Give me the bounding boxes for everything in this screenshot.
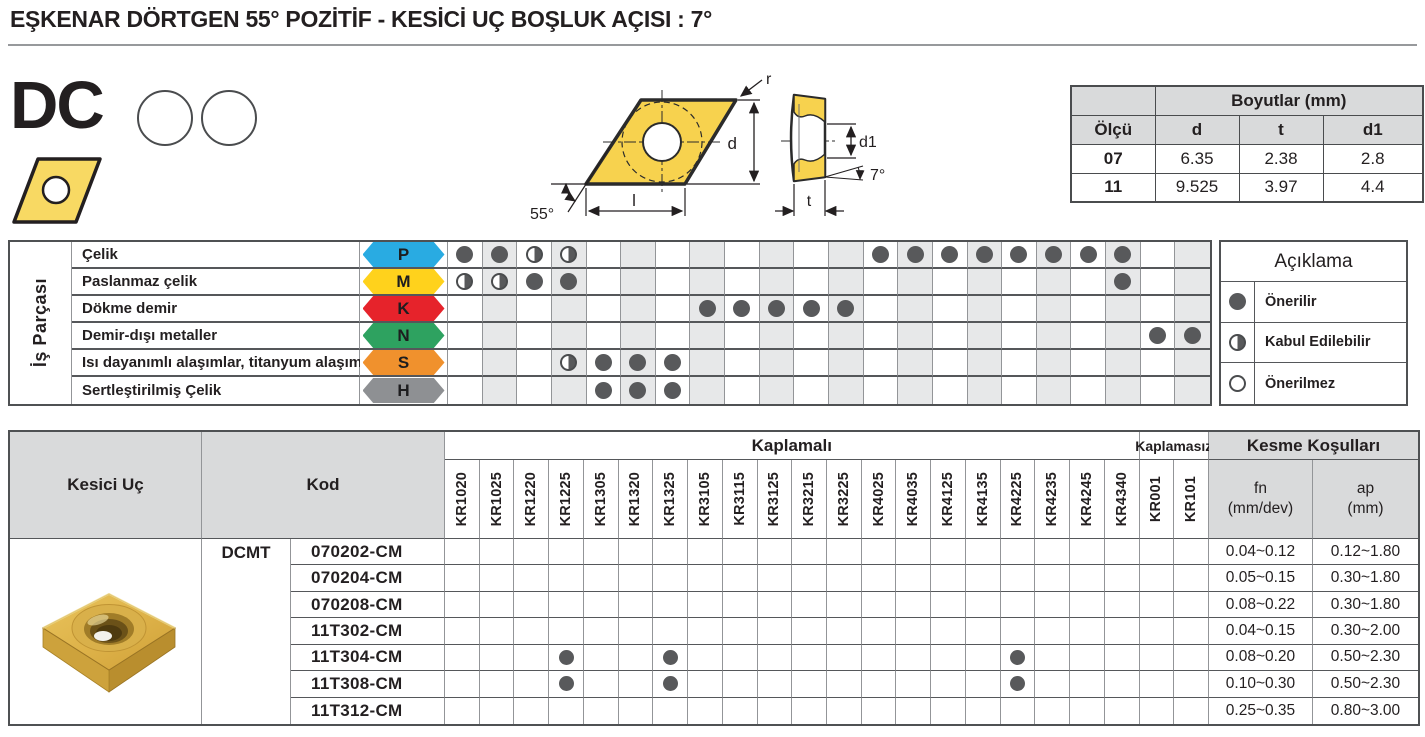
matrix-cell-k-kr3125 <box>760 296 795 323</box>
grade-column-header-kr4225: KR4225 <box>1001 460 1036 539</box>
grade-column-header-text: KR3215 <box>801 472 817 526</box>
matrix-cell-n-kr4225 <box>1002 323 1037 350</box>
fn-value: 0.25~0.35 <box>1209 698 1313 724</box>
grade-cell-11t312-cm-kr3215 <box>792 698 827 724</box>
uncoated-group-header: Kaplamasız <box>1140 432 1209 460</box>
legend-symbol-cell <box>1221 282 1255 323</box>
grade-cell-11t308-cm-kr3125 <box>758 671 793 697</box>
grade-cell-11t312-cm-kr1325 <box>653 698 688 724</box>
grade-cell-070202-cm-kr4125 <box>931 539 966 565</box>
matrix-cell-m-kr4245 <box>1071 269 1106 296</box>
matrix-cell-n-kr4340 <box>1106 323 1141 350</box>
fn-column-header: fn(mm/dev) <box>1209 460 1313 539</box>
matrix-cell-n-kr1325 <box>656 323 691 350</box>
grade-column-header-text: KR3225 <box>836 472 852 526</box>
grade-cell-070202-cm-kr1025 <box>480 539 515 565</box>
dim-label-7deg: 7° <box>870 167 885 184</box>
grade-cell-11t312-cm-kr4235 <box>1035 698 1070 724</box>
matrix-cell-h-kr3125 <box>760 377 795 404</box>
grade-cell-11t312-cm-kr1305 <box>584 698 619 724</box>
matrix-cell-k-kr1225 <box>552 296 587 323</box>
grade-cell-070202-cm-kr4340 <box>1105 539 1140 565</box>
grade-column-header-kr4340: KR4340 <box>1105 460 1140 539</box>
matrix-cell-s-kr3215 <box>794 350 829 377</box>
grade-cell-070208-cm-kr4225 <box>1001 592 1036 618</box>
material-group-badge-h: H <box>363 378 445 403</box>
rating-dot-recommended <box>526 273 543 290</box>
grade-cell-070202-cm-kr3215 <box>792 539 827 565</box>
grade-cell-11t302-cm-kr4035 <box>896 618 931 644</box>
grade-cell-11t304-cm-kr1325 <box>653 645 688 671</box>
matrix-cell-m-kr3105 <box>690 269 725 296</box>
grade-cell-11t308-cm-kr3225 <box>827 671 862 697</box>
rating-dot-recommended <box>803 300 820 317</box>
legend-symbol-acceptable <box>1229 334 1246 351</box>
grade-cell-11t308-cm-kr4235 <box>1035 671 1070 697</box>
coated-group-header: Kaplamalı <box>445 432 1140 460</box>
grade-cell-070204-cm-kr3215 <box>792 565 827 591</box>
grade-cell-070204-cm-kr1025 <box>480 565 515 591</box>
grade-cell-070202-cm-kr1320 <box>619 539 654 565</box>
grade-cell-11t308-cm-kr4340 <box>1105 671 1140 697</box>
grade-dot-recommended <box>1010 650 1025 665</box>
matrix-cell-k-kr4235 <box>1037 296 1072 323</box>
grade-cell-11t304-cm-kr3115 <box>723 645 758 671</box>
rating-dot-recommended <box>595 382 612 399</box>
insert-series-label: DCMT <box>202 539 291 724</box>
grade-cell-11t302-cm-kr3215 <box>792 618 827 644</box>
matrix-cell-s-kr101 <box>1175 350 1210 377</box>
grade-cell-070208-cm-kr4125 <box>931 592 966 618</box>
legend-label: Kabul Edilebilir <box>1255 323 1406 364</box>
grade-cell-11t308-cm-kr4035 <box>896 671 931 697</box>
matrix-cell-m-kr4025 <box>864 269 899 296</box>
matrix-cell-n-kr4245 <box>1071 323 1106 350</box>
matrix-cell-m-kr1320 <box>621 269 656 296</box>
dims-d: 6.35 <box>1155 144 1239 173</box>
grade-cell-070202-cm-kr3125 <box>758 539 793 565</box>
matrix-cell-s-kr001 <box>1141 350 1176 377</box>
grade-cell-070204-cm-kr1320 <box>619 565 654 591</box>
matrix-cell-p-kr1025 <box>483 242 518 269</box>
grade-cell-11t302-cm-kr4135 <box>966 618 1001 644</box>
fn-value: 0.08~0.22 <box>1209 592 1313 618</box>
grade-cell-11t304-cm-kr4340 <box>1105 645 1140 671</box>
grade-column-header-text: KR1220 <box>523 472 539 526</box>
dim-label-r: r <box>766 71 772 88</box>
grade-cell-070202-cm-kr4025 <box>862 539 897 565</box>
matrix-cell-h-kr1020 <box>448 377 483 404</box>
grade-column-header-text: KR4225 <box>1009 472 1025 526</box>
grade-cell-11t304-cm-kr4035 <box>896 645 931 671</box>
dims-title: Boyutlar (mm) <box>1155 86 1423 115</box>
material-label: Dökme demir <box>72 296 360 323</box>
grade-cell-070208-cm-kr001 <box>1140 592 1175 618</box>
grade-cell-070208-cm-kr3115 <box>723 592 758 618</box>
grade-cell-070204-cm-kr4340 <box>1105 565 1140 591</box>
fn-value: 0.04~0.15 <box>1209 618 1313 644</box>
matrix-cell-m-kr4035 <box>898 269 933 296</box>
material-group-badge-p: P <box>363 242 445 267</box>
grade-column-header-kr4035: KR4035 <box>896 460 931 539</box>
matrix-cell-k-kr3225 <box>829 296 864 323</box>
grade-cell-11t312-cm-kr4025 <box>862 698 897 724</box>
grade-column-header-text: KR4245 <box>1079 472 1095 526</box>
workpiece-side-label: İş Parçası <box>10 242 72 404</box>
rating-dot-acceptable <box>456 273 473 290</box>
matrix-cell-p-kr4225 <box>1002 242 1037 269</box>
matrix-cell-n-kr3125 <box>760 323 795 350</box>
fn-value: 0.05~0.15 <box>1209 565 1313 591</box>
matrix-cell-s-kr4235 <box>1037 350 1072 377</box>
matrix-cell-m-kr101 <box>1175 269 1210 296</box>
grade-cell-11t304-cm-kr3105 <box>688 645 723 671</box>
matrix-cell-p-kr3125 <box>760 242 795 269</box>
grade-dot-recommended <box>559 650 574 665</box>
grade-cell-11t302-cm-kr3125 <box>758 618 793 644</box>
rating-dot-recommended <box>456 246 473 263</box>
grade-cell-070202-cm-kr4035 <box>896 539 931 565</box>
matrix-cell-k-kr4035 <box>898 296 933 323</box>
matrix-cell-p-kr4340 <box>1106 242 1141 269</box>
grade-cell-11t308-cm-kr1320 <box>619 671 654 697</box>
fn-label: fn <box>1254 479 1267 499</box>
matrix-cell-k-kr3115 <box>725 296 760 323</box>
grade-column-header-kr4135: KR4135 <box>966 460 1001 539</box>
matrix-cell-m-kr4235 <box>1037 269 1072 296</box>
matrix-cell-h-kr4125 <box>933 377 968 404</box>
grade-cell-11t308-cm-kr4125 <box>931 671 966 697</box>
grade-cell-070204-cm-kr4235 <box>1035 565 1070 591</box>
grade-column-header-text: KR4235 <box>1044 472 1060 526</box>
grade-column-header-kr3225: KR3225 <box>827 460 862 539</box>
matrix-cell-h-kr4235 <box>1037 377 1072 404</box>
grade-cell-11t312-cm-kr4125 <box>931 698 966 724</box>
material-label: Demir-dışı metaller <box>72 323 360 350</box>
matrix-cell-k-kr1025 <box>483 296 518 323</box>
matrix-cell-m-kr1305 <box>587 269 622 296</box>
insert-code: 11T312-CM <box>291 698 445 724</box>
matrix-cell-s-kr3125 <box>760 350 795 377</box>
dimensions-table: Boyutlar (mm) Ölçü d t d1 07 6.35 2.38 2… <box>1070 85 1424 203</box>
grade-cell-070204-cm-kr4225 <box>1001 565 1036 591</box>
rating-dot-recommended <box>1114 246 1131 263</box>
grade-cell-070208-cm-kr4235 <box>1035 592 1070 618</box>
matrix-cell-n-kr4125 <box>933 323 968 350</box>
grade-cell-11t308-cm-kr001 <box>1140 671 1175 697</box>
grade-column-header-text: KR4125 <box>940 472 956 526</box>
grade-cell-070208-cm-kr3215 <box>792 592 827 618</box>
dim-label-d: d <box>728 134 737 153</box>
material-group-cell: H <box>360 377 448 404</box>
dims-row-11: 11 9.525 3.97 4.4 <box>1071 173 1423 202</box>
matrix-cell-s-kr1220 <box>517 350 552 377</box>
grade-cell-070204-cm-kr101 <box>1174 565 1209 591</box>
matrix-cell-p-kr4025 <box>864 242 899 269</box>
grade-cell-11t304-cm-kr1220 <box>514 645 549 671</box>
grade-cell-070208-cm-kr4025 <box>862 592 897 618</box>
material-group-badge-k: K <box>363 296 445 321</box>
grade-cell-11t304-cm-kr4125 <box>931 645 966 671</box>
grade-cell-11t304-cm-kr3215 <box>792 645 827 671</box>
matrix-cell-k-kr1220 <box>517 296 552 323</box>
matrix-cell-k-kr4245 <box>1071 296 1106 323</box>
grade-cell-11t312-cm-kr4035 <box>896 698 931 724</box>
grade-cell-11t304-cm-kr3125 <box>758 645 793 671</box>
matrix-cell-s-kr1025 <box>483 350 518 377</box>
grade-cell-11t312-cm-kr001 <box>1140 698 1175 724</box>
material-group-badge-m: M <box>363 269 445 294</box>
grade-cell-11t302-cm-kr1225 <box>549 618 584 644</box>
matrix-cell-m-kr4125 <box>933 269 968 296</box>
grade-column-header-kr1025: KR1025 <box>480 460 515 539</box>
grade-cell-070202-cm-kr1225 <box>549 539 584 565</box>
grade-cell-11t308-cm-kr3115 <box>723 671 758 697</box>
legend-label: Önerilmez <box>1255 363 1406 404</box>
rating-dot-acceptable <box>560 354 577 371</box>
fn-value: 0.08~0.20 <box>1209 645 1313 671</box>
grade-cell-11t312-cm-kr1025 <box>480 698 515 724</box>
matrix-cell-p-kr1325 <box>656 242 691 269</box>
grade-cell-070202-cm-kr4245 <box>1070 539 1105 565</box>
shape-circle-icon-2 <box>201 90 257 146</box>
grade-column-header-kr4025: KR4025 <box>862 460 897 539</box>
grade-column-header-kr3115: KR3115 <box>723 460 758 539</box>
grade-column-header-text: KR1320 <box>627 472 643 526</box>
matrix-cell-n-kr3105 <box>690 323 725 350</box>
matrix-cell-p-kr1220 <box>517 242 552 269</box>
matrix-cell-h-kr4225 <box>1002 377 1037 404</box>
matrix-cell-m-kr3125 <box>760 269 795 296</box>
grade-cell-070204-cm-kr4035 <box>896 565 931 591</box>
grade-cell-11t302-cm-kr1220 <box>514 618 549 644</box>
matrix-cell-p-kr1020 <box>448 242 483 269</box>
grade-cell-070204-cm-kr3125 <box>758 565 793 591</box>
matrix-cell-s-kr1320 <box>621 350 656 377</box>
ap-value: 0.30~1.80 <box>1313 565 1418 591</box>
grade-cell-070204-cm-kr1305 <box>584 565 619 591</box>
matrix-cell-m-kr1020 <box>448 269 483 296</box>
legend-symbol-recommended <box>1229 293 1246 310</box>
matrix-cell-s-kr1305 <box>587 350 622 377</box>
grade-cell-070208-cm-kr4135 <box>966 592 1001 618</box>
rating-dot-recommended <box>1080 246 1097 263</box>
matrix-cell-s-kr1325 <box>656 350 691 377</box>
matrix-cell-s-kr4135 <box>968 350 1003 377</box>
insert-code: 11T308-CM <box>291 671 445 697</box>
matrix-cell-p-kr4035 <box>898 242 933 269</box>
grade-cell-11t304-cm-kr101 <box>1174 645 1209 671</box>
grade-cell-11t302-cm-kr3115 <box>723 618 758 644</box>
matrix-cell-s-kr1020 <box>448 350 483 377</box>
dims-row-07: 07 6.35 2.38 2.8 <box>1071 144 1423 173</box>
dims-size: 11 <box>1071 173 1155 202</box>
grade-cell-070208-cm-kr1325 <box>653 592 688 618</box>
matrix-cell-m-kr1025 <box>483 269 518 296</box>
cutting-conditions-header: Kesme Koşulları <box>1209 432 1418 460</box>
matrix-cell-m-kr3225 <box>829 269 864 296</box>
workpiece-side-label-text: İş Parçası <box>30 278 51 367</box>
grade-cell-070204-cm-kr4245 <box>1070 565 1105 591</box>
grade-column-header-text: KR1325 <box>662 472 678 526</box>
rating-dot-recommended <box>595 354 612 371</box>
matrix-cell-p-kr4125 <box>933 242 968 269</box>
rating-dot-recommended <box>1184 327 1201 344</box>
matrix-cell-n-kr1305 <box>587 323 622 350</box>
grade-column-header-kr1220: KR1220 <box>514 460 549 539</box>
legend-symbol-not-recommended <box>1229 375 1246 392</box>
grade-cell-11t302-cm-kr3225 <box>827 618 862 644</box>
matrix-cell-p-kr3225 <box>829 242 864 269</box>
grade-column-header-text: KR1225 <box>558 472 574 526</box>
grade-cell-11t308-cm-kr1025 <box>480 671 515 697</box>
grade-column-header-text: KR001 <box>1148 476 1164 522</box>
grade-column-header-kr4245: KR4245 <box>1070 460 1105 539</box>
dim-label-t: t <box>807 193 812 210</box>
matrix-cell-n-kr1320 <box>621 323 656 350</box>
grade-column-header-kr1020: KR1020 <box>445 460 480 539</box>
grade-cell-11t304-cm-kr1225 <box>549 645 584 671</box>
grade-cell-11t302-cm-kr1305 <box>584 618 619 644</box>
grade-cell-11t302-cm-kr1320 <box>619 618 654 644</box>
title-divider <box>8 44 1417 46</box>
matrix-cell-h-kr1305 <box>587 377 622 404</box>
dims-d: 9.525 <box>1155 173 1239 202</box>
grade-cell-070208-cm-kr4340 <box>1105 592 1140 618</box>
matrix-cell-p-kr3215 <box>794 242 829 269</box>
matrix-cell-m-kr4340 <box>1106 269 1141 296</box>
grade-column-header-text: KR1020 <box>454 472 470 526</box>
rating-dot-recommended <box>941 246 958 263</box>
matrix-cell-p-kr101 <box>1175 242 1210 269</box>
grade-cell-070204-cm-kr4135 <box>966 565 1001 591</box>
grade-column-header-kr3215: KR3215 <box>792 460 827 539</box>
matrix-cell-h-kr1025 <box>483 377 518 404</box>
grade-cell-070202-cm-kr1220 <box>514 539 549 565</box>
grade-cell-11t304-cm-kr4235 <box>1035 645 1070 671</box>
grade-column-header-kr1325: KR1325 <box>653 460 688 539</box>
grade-cell-070208-cm-kr1305 <box>584 592 619 618</box>
dims-col-t: t <box>1239 115 1323 144</box>
insert-photo-cell <box>10 539 202 724</box>
grade-column-header-text: KR3125 <box>766 472 782 526</box>
insert-code: 070208-CM <box>291 592 445 618</box>
legend-title: Açıklama <box>1221 242 1406 282</box>
grade-column-header-text: KR3105 <box>697 472 713 526</box>
grade-column-header-kr3105: KR3105 <box>688 460 723 539</box>
grade-cell-11t308-cm-kr4025 <box>862 671 897 697</box>
grade-cell-11t308-cm-kr1305 <box>584 671 619 697</box>
material-group-cell: N <box>360 323 448 350</box>
grade-cell-070202-cm-kr101 <box>1174 539 1209 565</box>
grade-cell-11t302-cm-kr4235 <box>1035 618 1070 644</box>
grade-cell-11t312-cm-kr1020 <box>445 698 480 724</box>
grade-cell-070202-cm-kr1325 <box>653 539 688 565</box>
grade-cell-070208-cm-kr3125 <box>758 592 793 618</box>
grade-column-header-kr4125: KR4125 <box>931 460 966 539</box>
grade-column-header-text: KR4340 <box>1114 472 1130 526</box>
matrix-cell-n-kr3115 <box>725 323 760 350</box>
grade-dot-recommended <box>663 650 678 665</box>
rating-dot-acceptable <box>526 246 543 263</box>
ap-value: 0.30~2.00 <box>1313 618 1418 644</box>
grade-cell-070202-cm-kr4235 <box>1035 539 1070 565</box>
grade-cell-11t304-cm-kr1025 <box>480 645 515 671</box>
ap-value: 0.30~1.80 <box>1313 592 1418 618</box>
dims-col-d: d <box>1155 115 1239 144</box>
matrix-cell-h-kr3115 <box>725 377 760 404</box>
grade-column-header-text: KR4035 <box>905 472 921 526</box>
grade-cell-070204-cm-kr3225 <box>827 565 862 591</box>
page-title: EŞKENAR DÖRTGEN 55° POZİTİF - KESİCİ UÇ … <box>10 6 712 33</box>
fn-unit: (mm/dev) <box>1228 499 1293 519</box>
matrix-cell-h-kr4340 <box>1106 377 1141 404</box>
grade-column-header-text: KR3115 <box>732 472 748 526</box>
matrix-cell-k-kr1020 <box>448 296 483 323</box>
grade-cell-070204-cm-kr1220 <box>514 565 549 591</box>
grade-cell-070208-cm-kr4035 <box>896 592 931 618</box>
grade-cell-070208-cm-kr1025 <box>480 592 515 618</box>
grade-cell-11t308-cm-kr1020 <box>445 671 480 697</box>
insert-code: 070204-CM <box>291 565 445 591</box>
material-group-cell: P <box>360 242 448 269</box>
grade-cell-11t302-cm-kr3105 <box>688 618 723 644</box>
grade-cell-11t304-cm-kr4135 <box>966 645 1001 671</box>
grade-cell-11t302-cm-kr1025 <box>480 618 515 644</box>
matrix-cell-p-kr4135 <box>968 242 1003 269</box>
matrix-cell-s-kr4225 <box>1002 350 1037 377</box>
grade-cell-070204-cm-kr3115 <box>723 565 758 591</box>
grade-cell-11t308-cm-kr4245 <box>1070 671 1105 697</box>
insert-code: 11T302-CM <box>291 618 445 644</box>
material-label: Isı dayanımlı alaşımlar, titanyum alaşım… <box>72 350 360 377</box>
grade-column-header-kr4235: KR4235 <box>1035 460 1070 539</box>
grade-column-header-kr101: KR101 <box>1174 460 1209 539</box>
matrix-cell-h-kr1320 <box>621 377 656 404</box>
ap-column-header: ap(mm) <box>1313 460 1418 539</box>
material-label: Sertleştirilmiş Çelik <box>72 377 360 404</box>
ap-value: 0.80~3.00 <box>1313 698 1418 724</box>
matrix-cell-k-kr001 <box>1141 296 1176 323</box>
ap-label: ap <box>1357 479 1374 499</box>
grade-cell-070204-cm-kr3105 <box>688 565 723 591</box>
matrix-cell-n-kr4135 <box>968 323 1003 350</box>
insert-family-code: DC <box>10 72 103 139</box>
insert-column-header: Kesici Uç <box>10 432 202 539</box>
grade-cell-11t304-cm-kr1020 <box>445 645 480 671</box>
matrix-cell-n-kr1220 <box>517 323 552 350</box>
grade-cell-11t312-cm-kr1220 <box>514 698 549 724</box>
grade-cell-11t304-cm-kr4225 <box>1001 645 1036 671</box>
legend-symbol-cell <box>1221 323 1255 364</box>
grade-cell-11t312-cm-kr4340 <box>1105 698 1140 724</box>
fn-value: 0.04~0.12 <box>1209 539 1313 565</box>
grade-cell-070204-cm-kr001 <box>1140 565 1175 591</box>
grade-cell-070202-cm-kr3225 <box>827 539 862 565</box>
matrix-cell-m-kr1325 <box>656 269 691 296</box>
grade-cell-11t302-cm-kr4245 <box>1070 618 1105 644</box>
grade-cell-070208-cm-kr1020 <box>445 592 480 618</box>
dim-label-d1: d1 <box>859 134 877 151</box>
ap-value: 0.50~2.30 <box>1313 645 1418 671</box>
grade-dot-recommended <box>663 676 678 691</box>
matrix-cell-n-kr101 <box>1175 323 1210 350</box>
matrix-cell-k-kr4340 <box>1106 296 1141 323</box>
rating-dot-recommended <box>1114 273 1131 290</box>
matrix-cell-k-kr1320 <box>621 296 656 323</box>
matrix-cell-h-kr3225 <box>829 377 864 404</box>
grade-cell-070204-cm-kr1325 <box>653 565 688 591</box>
